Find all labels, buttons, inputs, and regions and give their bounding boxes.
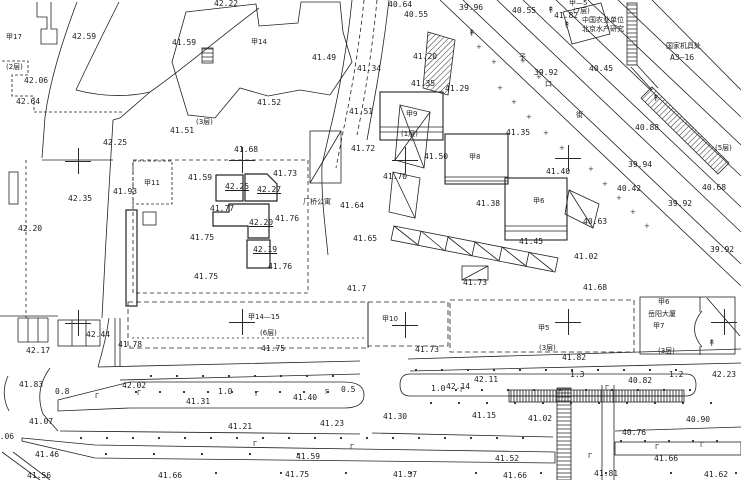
survey-point-dot: [231, 391, 233, 393]
survey-point-dot: [210, 437, 212, 439]
street-lamp-icon: Γ: [95, 393, 99, 400]
survey-point-dot: [297, 453, 299, 455]
survey-point-dot: [201, 453, 203, 455]
survey-point-dot: [626, 402, 628, 404]
survey-point-dot: [670, 472, 672, 474]
site-plan-drawing: 42.2240.6440.5539.9640.5541.82甲—5(7层)中国农…: [0, 0, 741, 480]
tree-icon: ↟: [547, 7, 555, 16]
survey-point-dot: [255, 391, 257, 393]
survey-point-dot: [340, 437, 342, 439]
survey-point-dot: [533, 389, 535, 391]
survey-point-dot: [496, 437, 498, 439]
survey-point-dot: [314, 437, 316, 439]
survey-plus-mark: +: [526, 114, 532, 121]
survey-plus-mark: +: [491, 59, 497, 66]
survey-point-dot: [207, 391, 209, 393]
survey-point-dot: [514, 402, 516, 404]
street-lamp-icon: Γ: [350, 444, 354, 451]
survey-point-dot: [654, 402, 656, 404]
survey-cross-icon: [229, 147, 255, 173]
survey-point-dot: [542, 402, 544, 404]
survey-point-dot: [692, 440, 694, 442]
survey-cross-icon: [392, 147, 418, 173]
street-lamp-icon: Γ: [137, 390, 141, 397]
survey-point-dot: [545, 369, 547, 371]
survey-point-dot: [332, 375, 334, 377]
survey-point-dot: [410, 472, 412, 474]
survey-plus-mark: +: [588, 166, 594, 173]
survey-point-dot: [279, 391, 281, 393]
survey-point-dot: [597, 369, 599, 371]
survey-plus-mark: +: [536, 74, 542, 81]
survey-point-dot: [486, 402, 488, 404]
survey-point-dot: [663, 389, 665, 391]
survey-point-dot: [598, 402, 600, 404]
tree-icon: ↟: [468, 30, 476, 39]
survey-plus-mark: +: [602, 181, 608, 188]
survey-point-dot: [507, 389, 509, 391]
survey-point-dot: [228, 375, 230, 377]
survey-point-dot: [303, 391, 305, 393]
survey-point-dot: [470, 437, 472, 439]
survey-plus-mark: +: [476, 44, 482, 51]
survey-point-dot: [689, 389, 691, 391]
map-symbols-layer: ↟↟↟↟↟ΓΓΓΓΓΓΓΓΓΓΓ++++++++++++++: [0, 0, 741, 480]
survey-point-dot: [418, 437, 420, 439]
survey-point-dot: [132, 437, 134, 439]
tree-icon: ↟: [708, 340, 716, 349]
survey-plus-mark: +: [543, 130, 549, 137]
survey-point-dot: [458, 402, 460, 404]
survey-point-dot: [571, 369, 573, 371]
survey-point-dot: [644, 440, 646, 442]
survey-point-dot: [150, 375, 152, 377]
survey-point-dot: [649, 369, 651, 371]
survey-point-dot: [735, 472, 737, 474]
street-lamp-icon: Γ: [253, 441, 257, 448]
survey-point-dot: [570, 402, 572, 404]
survey-point-dot: [668, 440, 670, 442]
survey-cross-icon: [229, 309, 255, 335]
survey-point-dot: [80, 437, 82, 439]
survey-point-dot: [249, 453, 251, 455]
survey-point-dot: [430, 402, 432, 404]
survey-plus-mark: +: [497, 85, 503, 92]
survey-point-dot: [236, 437, 238, 439]
street-lamp-icon: Γ: [588, 453, 592, 460]
survey-point-dot: [637, 389, 639, 391]
survey-point-dot: [441, 369, 443, 371]
tree-icon: ↟: [563, 22, 571, 31]
survey-point-dot: [605, 472, 607, 474]
survey-plus-mark: +: [644, 223, 650, 230]
street-lamp-icon: Γ: [460, 387, 464, 394]
survey-point-dot: [366, 437, 368, 439]
survey-point-dot: [280, 375, 282, 377]
survey-point-dot: [183, 391, 185, 393]
survey-point-dot: [288, 437, 290, 439]
survey-plus-mark: +: [520, 58, 526, 65]
survey-point-dot: [202, 375, 204, 377]
survey-point-dot: [710, 402, 712, 404]
survey-point-dot: [153, 453, 155, 455]
survey-point-dot: [106, 437, 108, 439]
street-lamp-icon: Γ: [700, 442, 704, 449]
survey-point-dot: [682, 402, 684, 404]
survey-point-dot: [415, 369, 417, 371]
survey-point-dot: [176, 375, 178, 377]
survey-point-dot: [262, 437, 264, 439]
survey-plus-mark: +: [630, 209, 636, 216]
survey-point-dot: [585, 389, 587, 391]
survey-point-dot: [481, 389, 483, 391]
survey-point-dot: [519, 369, 521, 371]
survey-cross-icon: [555, 309, 581, 335]
survey-point-dot: [280, 472, 282, 474]
street-lamp-icon: Γ: [605, 385, 609, 392]
survey-point-dot: [716, 440, 718, 442]
survey-point-dot: [540, 472, 542, 474]
survey-point-dot: [159, 391, 161, 393]
survey-point-dot: [455, 389, 457, 391]
survey-plus-mark: +: [616, 195, 622, 202]
survey-point-dot: [475, 472, 477, 474]
survey-point-dot: [559, 389, 561, 391]
street-lamp-icon: Γ: [655, 444, 659, 451]
survey-point-dot: [215, 472, 217, 474]
survey-point-dot: [611, 389, 613, 391]
survey-point-dot: [467, 369, 469, 371]
survey-point-dot: [184, 437, 186, 439]
survey-point-dot: [623, 369, 625, 371]
survey-point-dot: [135, 391, 137, 393]
survey-point-dot: [306, 375, 308, 377]
survey-point-dot: [493, 369, 495, 371]
survey-cross-icon: [65, 148, 91, 174]
survey-point-dot: [158, 437, 160, 439]
tree-icon: ↟: [652, 95, 660, 104]
survey-point-dot: [327, 391, 329, 393]
survey-point-dot: [254, 375, 256, 377]
survey-point-dot: [105, 453, 107, 455]
survey-point-dot: [675, 369, 677, 371]
survey-cross-icon: [711, 309, 737, 335]
survey-plus-mark: +: [511, 99, 517, 106]
survey-point-dot: [392, 437, 394, 439]
survey-plus-mark: +: [559, 145, 565, 152]
survey-point-dot: [345, 472, 347, 474]
survey-cross-icon: [392, 312, 418, 338]
survey-cross-icon: [65, 310, 91, 336]
survey-point-dot: [444, 437, 446, 439]
survey-point-dot: [620, 440, 622, 442]
survey-point-dot: [522, 437, 524, 439]
